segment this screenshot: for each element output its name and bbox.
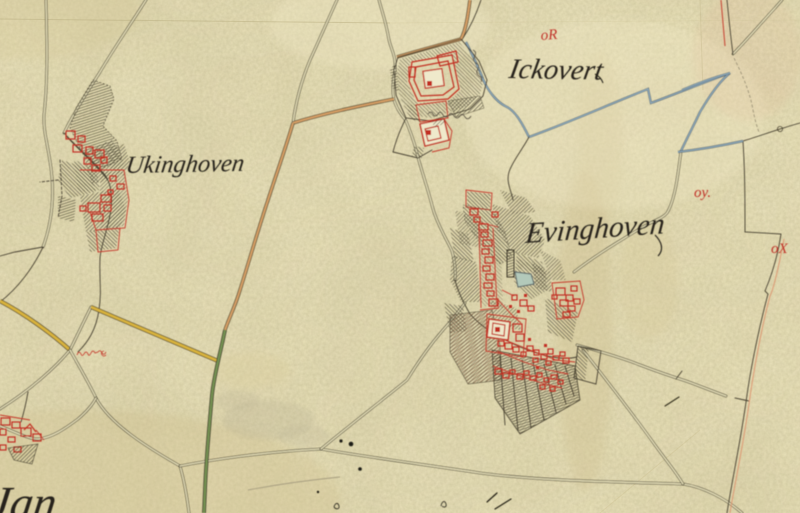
svg-text:Ukinghoven: Ukinghoven [124, 150, 246, 179]
svg-text:oy.: oy. [694, 185, 711, 201]
svg-text:Ickovert: Ickovert [506, 53, 607, 86]
svg-text:Jan: Jan [0, 477, 60, 513]
svg-text:oR: oR [540, 27, 558, 44]
svg-text:oX: oX [771, 241, 789, 257]
